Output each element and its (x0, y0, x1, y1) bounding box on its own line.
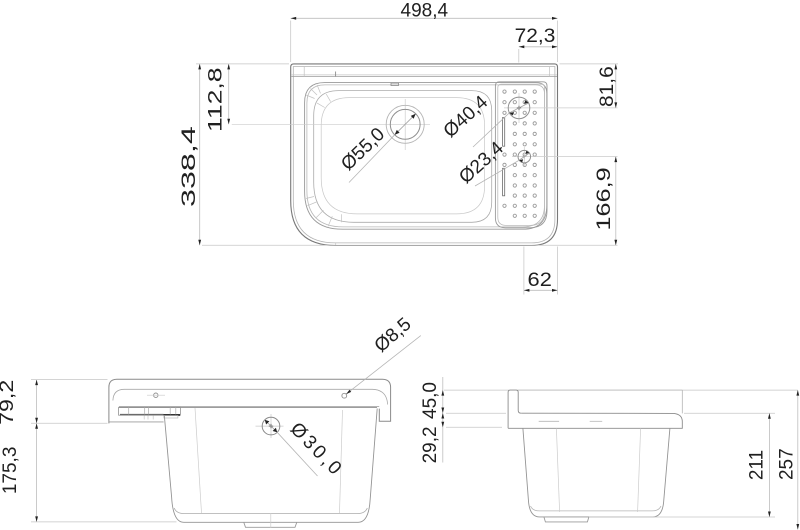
svg-text:166,9: 166,9 (593, 167, 614, 230)
svg-text:29,2: 29,2 (420, 426, 441, 463)
svg-text:72,3: 72,3 (515, 26, 556, 47)
svg-text:175,3: 175,3 (0, 447, 21, 495)
svg-text:81,6: 81,6 (597, 66, 618, 107)
svg-text:79,2: 79,2 (0, 380, 17, 425)
svg-text:211: 211 (747, 450, 768, 480)
svg-text:62: 62 (528, 269, 552, 290)
svg-text:338,4: 338,4 (178, 126, 200, 207)
svg-text:45,0: 45,0 (420, 382, 441, 419)
svg-text:112,8: 112,8 (204, 67, 225, 132)
svg-text:498,4: 498,4 (401, 1, 449, 22)
svg-text:257: 257 (777, 448, 798, 480)
